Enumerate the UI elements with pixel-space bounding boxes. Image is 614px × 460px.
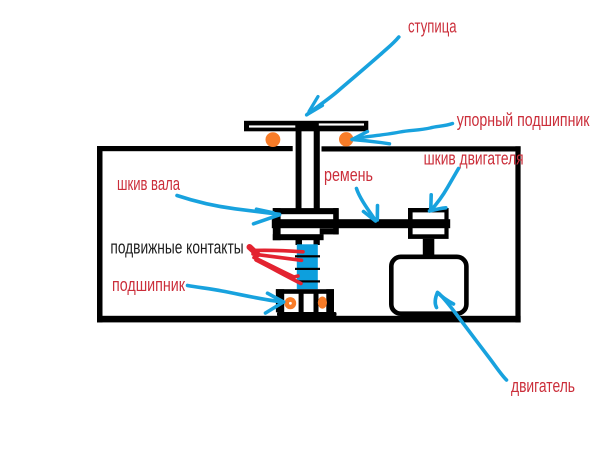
svg-text:шкив вала: шкив вала	[117, 173, 180, 194]
svg-text:ступица: ступица	[408, 15, 457, 36]
svg-text:подшипник: подшипник	[112, 274, 186, 295]
svg-text:подвижные контакты: подвижные контакты	[110, 237, 243, 258]
svg-text:шкив двигателя: шкив двигателя	[424, 147, 524, 168]
svg-text:упорный подшипник: упорный подшипник	[457, 109, 590, 130]
svg-text:ремень: ремень	[324, 164, 373, 185]
svg-text:двигатель: двигатель	[511, 375, 575, 396]
